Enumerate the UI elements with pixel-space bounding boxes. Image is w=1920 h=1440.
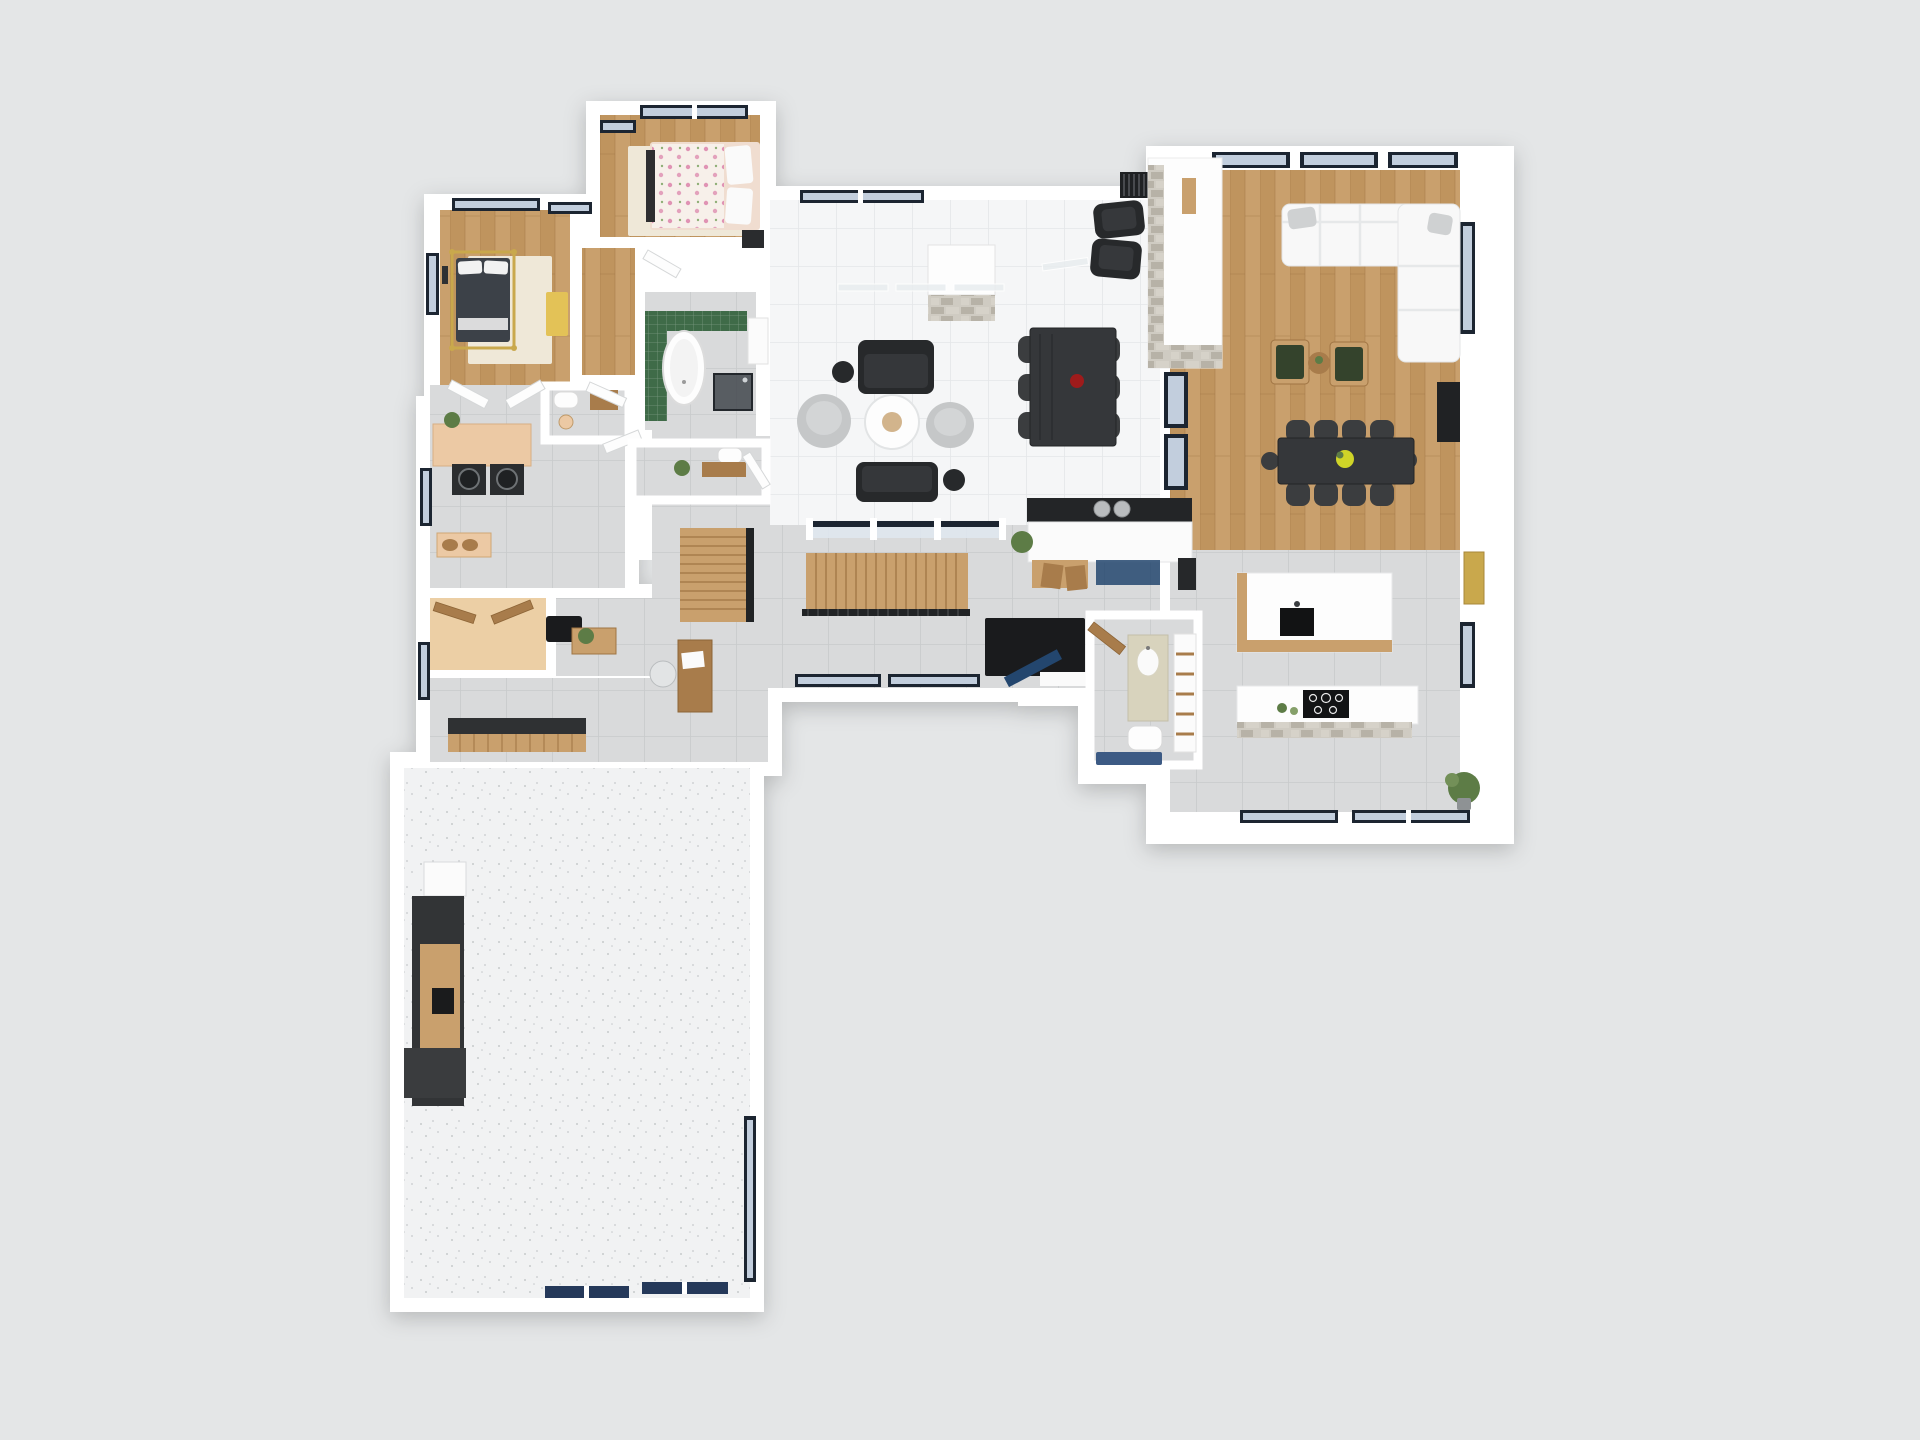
window-mudroom-left (418, 642, 430, 700)
red-vase (1070, 374, 1084, 388)
floorplan-render (0, 0, 1920, 1440)
room-garage (404, 862, 466, 1106)
accent-bench (546, 292, 568, 336)
plant (1011, 531, 1033, 553)
floor-hallway (582, 248, 635, 375)
toilet (1128, 726, 1162, 750)
window-laundry-left (420, 468, 432, 526)
herb-plant (1277, 703, 1287, 713)
island-sink (1280, 608, 1314, 636)
side-table-2 (943, 469, 965, 491)
bed-floral (646, 142, 760, 230)
window-interior-1 (1164, 372, 1188, 428)
linen-shelves (1174, 634, 1196, 752)
plant (444, 412, 460, 428)
garage-door-1 (545, 1286, 629, 1298)
floorplan-canvas (0, 0, 1920, 1440)
gray-pillow (1287, 206, 1318, 230)
hall-console-baskets (437, 533, 491, 557)
stair-flight-lower (802, 553, 970, 616)
stair-railing (746, 528, 754, 622)
window-bedroom2-top (640, 105, 748, 119)
walk-in-shower (714, 374, 752, 410)
media-console (1437, 382, 1460, 442)
nightstand (742, 230, 764, 248)
cooktop-counter (1237, 686, 1418, 738)
window-entry-bottom-2 (888, 674, 980, 687)
green-armchair-1 (1271, 340, 1309, 384)
glass-interior-wall (806, 518, 1006, 540)
herb-plant (1290, 707, 1298, 715)
vanity (1128, 635, 1168, 721)
window-garage-right (744, 1116, 756, 1282)
window-living-top (800, 190, 924, 203)
loveseat-1 (858, 340, 934, 394)
window-kitchen-bottom-2 (1352, 810, 1470, 823)
powder-vanity (702, 462, 746, 477)
side-table-1 (832, 361, 854, 383)
freestanding-tub (663, 331, 705, 405)
office-chair (650, 661, 676, 687)
bath-vanity (748, 318, 768, 364)
loveseat-2 (856, 462, 938, 502)
built-in-b bench (448, 718, 586, 752)
stool (1040, 563, 1063, 590)
gold-canopy-bed (449, 249, 517, 351)
garage-door-2 (642, 1282, 728, 1294)
armchair-2 (1089, 238, 1142, 280)
console-table (572, 628, 616, 654)
window-bedroom1-nook (548, 202, 592, 214)
window-bedroom1-top (452, 198, 540, 211)
window-greatroom-right (1460, 222, 1475, 334)
plant (674, 460, 690, 476)
round-side-table (1308, 352, 1330, 374)
fireplace (928, 245, 995, 321)
window-greatroom-top-3 (1388, 152, 1458, 168)
room-bathroom-2 (1088, 615, 1198, 765)
pouf-1 (797, 394, 851, 448)
stair-flight-upper (680, 528, 754, 622)
green-armchair-2 (1330, 342, 1368, 386)
double-fireplace-wall (1148, 158, 1222, 368)
stool (1065, 565, 1087, 591)
basket (559, 415, 573, 429)
cooktop (1303, 690, 1349, 718)
blue-glass-doors (1096, 560, 1160, 585)
toilet (718, 448, 742, 463)
wall-art (442, 266, 448, 284)
gold-wall-art (1464, 552, 1484, 604)
stair-railing (802, 609, 970, 616)
window-greatroom-top-1 (1212, 152, 1290, 168)
window-greatroom-top-2 (1300, 152, 1378, 168)
stone-counter-front (1237, 722, 1412, 738)
gray-pillow (1426, 212, 1453, 236)
armchair-1 (1092, 199, 1145, 239)
refrigerator (424, 862, 466, 896)
workbench (404, 896, 466, 1106)
window-entry-bottom-1 (795, 674, 881, 687)
toilet (554, 392, 578, 408)
washer (452, 464, 486, 495)
window-interior-2 (1164, 434, 1188, 490)
pouf-2 (926, 402, 974, 448)
mantel-wood (1182, 178, 1196, 214)
coffee-table (865, 395, 919, 449)
room-bedroom-2 (628, 142, 764, 248)
dryer (490, 464, 524, 495)
window-kitchen-bottom-1 (1240, 810, 1338, 823)
dining-set-6 (1018, 328, 1120, 446)
window-bedroom1-left (426, 253, 439, 315)
window-bedroom2-corner (600, 120, 636, 133)
laundry-counter (433, 424, 531, 466)
faucet (1294, 601, 1300, 607)
blue-mat (1096, 752, 1162, 765)
kitchen-island (1237, 573, 1392, 652)
room-bedroom-1 (442, 249, 568, 364)
dining-table (1030, 328, 1116, 446)
window-kitchen-right (1460, 622, 1475, 688)
powder-room (632, 443, 770, 500)
